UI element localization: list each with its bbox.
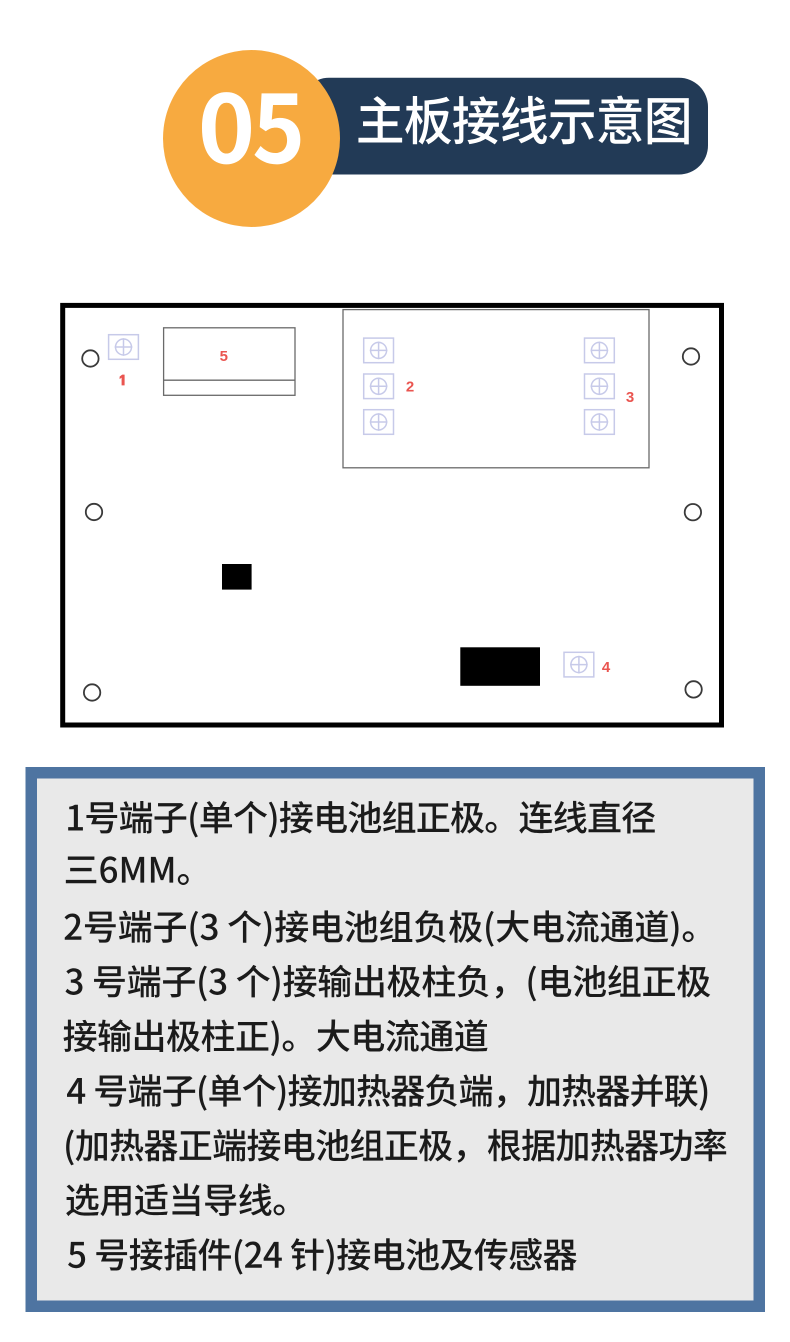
svg-text:5: 5 [220, 348, 228, 365]
svg-text:3: 3 [626, 389, 634, 406]
svg-text:4: 4 [602, 659, 611, 676]
svg-text:2: 2 [406, 379, 414, 396]
